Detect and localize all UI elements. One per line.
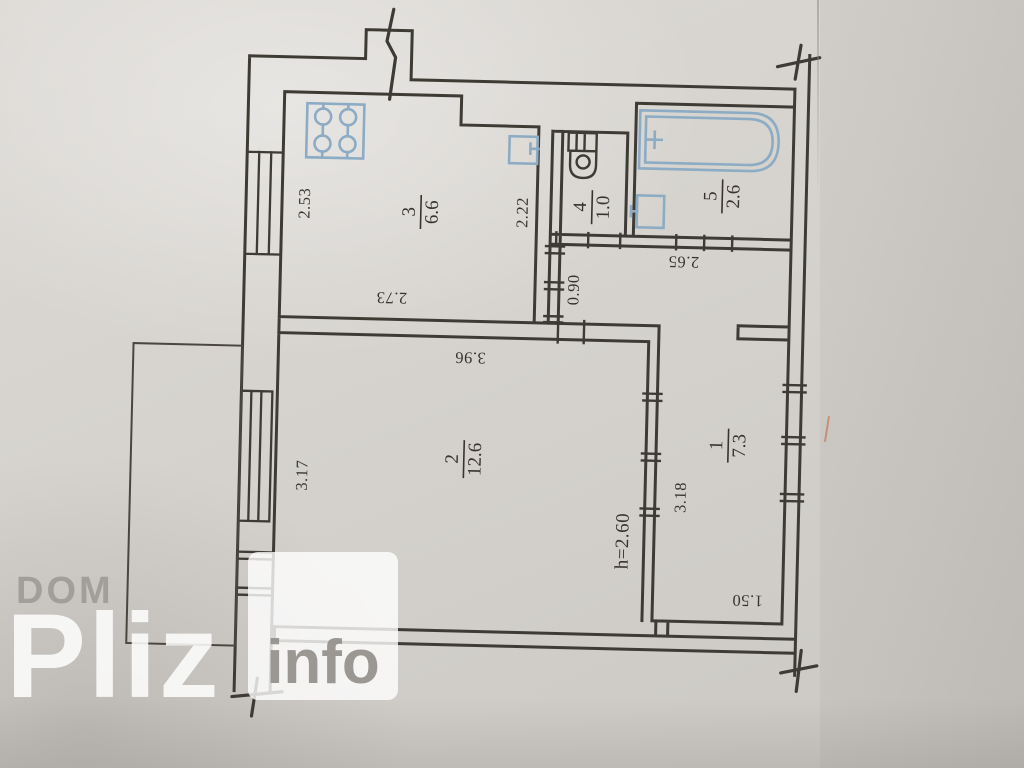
room-label-living: 2 12.6 xyxy=(441,440,486,479)
room-label-hall: 1 7.3 xyxy=(706,428,751,463)
room-label-bath: 5 2.6 xyxy=(700,179,745,214)
room-number: 3 xyxy=(399,207,420,217)
room-number: 4 xyxy=(570,201,591,212)
room-area: 6.6 xyxy=(422,200,444,224)
watermark-info-text: info xyxy=(266,632,380,694)
room-number: 1 xyxy=(706,440,727,450)
dim-corridor-width: 0.90 xyxy=(563,274,583,305)
dim-kitchen-inner: 2.22 xyxy=(512,197,532,228)
room-number: 5 xyxy=(700,191,721,201)
dim-kitchen-width: 2.53 xyxy=(294,188,314,219)
watermark-pliz: Pliz xyxy=(6,596,221,716)
room-area: 1.0 xyxy=(593,195,615,219)
paper-fold-edge xyxy=(817,0,819,200)
ceiling-height-note: h=2.60 xyxy=(612,513,634,570)
paper-right-shade xyxy=(820,0,1024,768)
floorplan-photo: 3 6.6 4 1.0 5 2.6 2 12.6 1 xyxy=(0,0,1024,768)
room-area: 2.6 xyxy=(723,185,745,209)
dim-hall-side: 3.18 xyxy=(670,482,690,513)
room-label-kitchen: 3 6.6 xyxy=(398,194,443,229)
toilet-icon xyxy=(568,133,597,179)
room-area: 12.6 xyxy=(464,443,486,477)
room-number: 2 xyxy=(442,454,463,464)
dim-hall-bottom: 1.50 xyxy=(732,591,763,611)
dim-room2-top: 3.96 xyxy=(455,348,486,368)
dim-room2-side: 3.17 xyxy=(292,460,312,491)
room-label-wc: 4 1.0 xyxy=(570,190,615,225)
kitchen-sink-icon xyxy=(509,136,539,164)
stove-icon xyxy=(306,103,364,158)
dim-kitchen-depth: 2.73 xyxy=(376,288,407,308)
watermark-info-box: info xyxy=(248,552,398,700)
dim-bath-block: 2.65 xyxy=(668,252,699,272)
door-tick-marks xyxy=(236,225,809,609)
bathtub-icon xyxy=(639,110,779,171)
room-area: 7.3 xyxy=(729,434,751,458)
